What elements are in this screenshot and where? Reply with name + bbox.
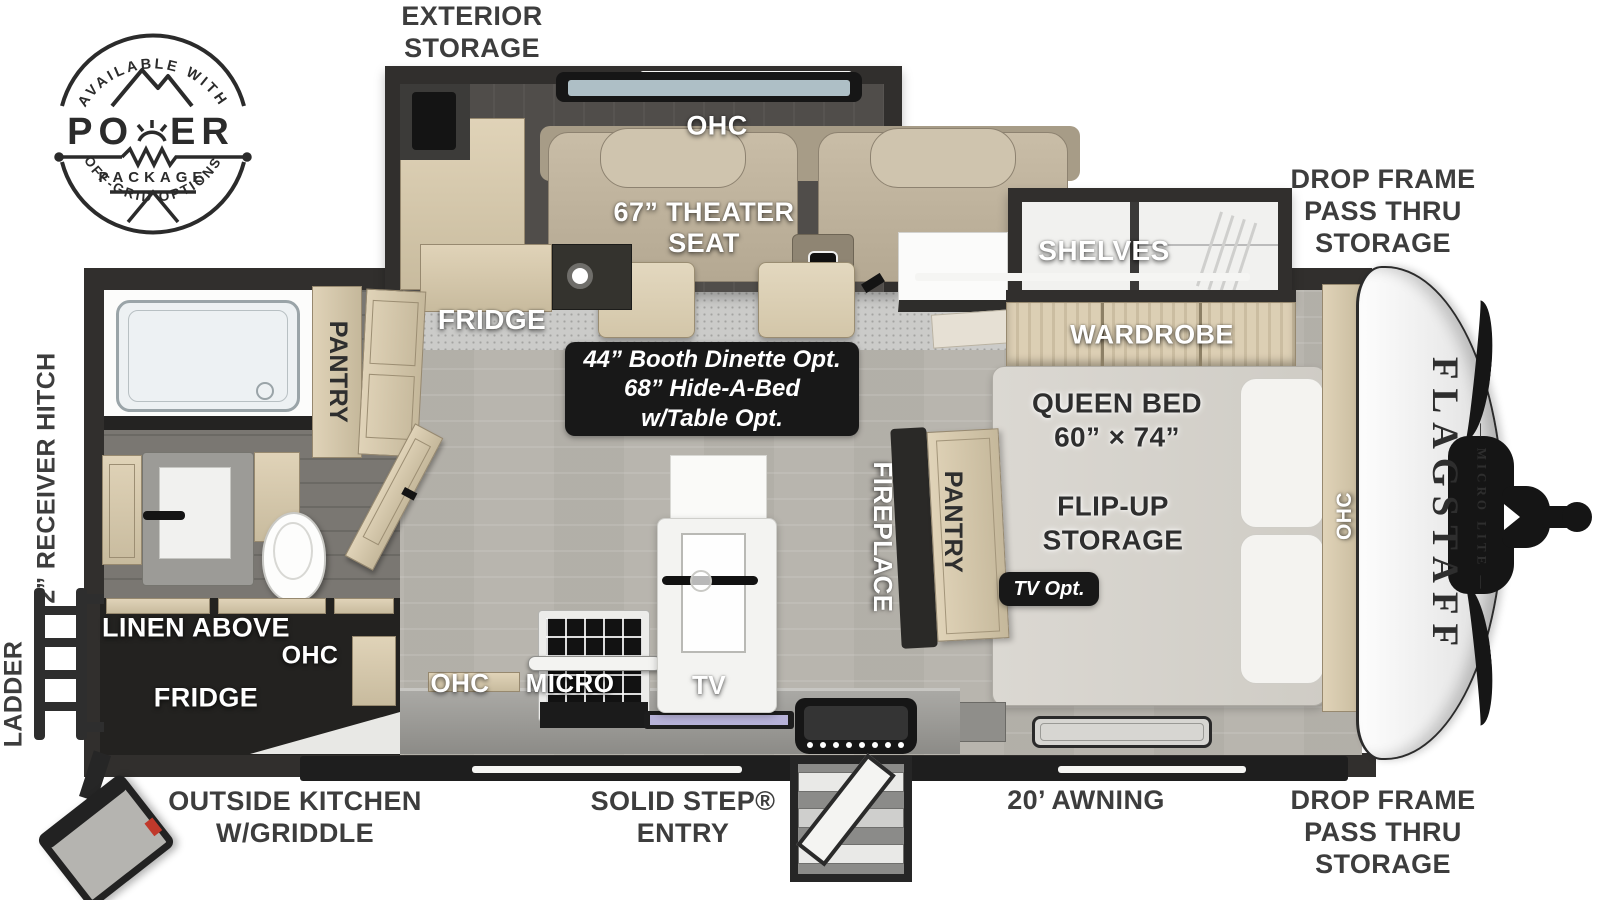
floorplan-diagram: AVAILABLE WITH OFF-GRID OPTIONS PO ER PA… (0, 0, 1600, 900)
tray-table-right (758, 262, 855, 338)
brand-subtitle: — MICRO LITE — (1474, 423, 1489, 592)
ohc-bed-label: OHC (1333, 492, 1357, 540)
top-wall-trim (915, 273, 1250, 281)
stove-base (540, 702, 648, 728)
faucet-icon (143, 511, 185, 520)
logo-title-left: PO (67, 111, 134, 153)
ladder-label: LADDER (0, 641, 29, 748)
hitch-coupler-icon (1562, 502, 1592, 532)
dinette-option-label: 44” Booth Dinette Opt. 68” Hide-A-Bed w/… (583, 345, 840, 433)
dinette-option-badge: 44” Booth Dinette Opt. 68” Hide-A-Bed w/… (565, 342, 859, 436)
rear-shelf-3 (334, 598, 394, 614)
shower-drain-icon (256, 382, 274, 400)
galley-cabinet (420, 244, 552, 312)
ladder (32, 588, 96, 740)
power-package-logo: AVAILABLE WITH OFF-GRID OPTIONS PO ER PA… (46, 24, 260, 238)
shower (104, 290, 312, 430)
kitchen-sink (795, 698, 917, 754)
theater-seat-label: 67” THEATER SEAT (614, 197, 795, 259)
bedroom-step (931, 309, 1011, 348)
tv-opt-badge: TV Opt. (999, 572, 1099, 606)
bedroom-pantry-label: PANTRY (937, 471, 967, 573)
ohc-rear-label: OHC (282, 642, 339, 671)
bed-pillow-top (1240, 378, 1324, 528)
brand-name: FLAGSTAFF (1422, 357, 1466, 655)
entry-door-upper (670, 455, 767, 521)
flip-up-storage-label: FLIP-UP STORAGE (1043, 489, 1184, 556)
ohc-kitchen-label: OHC (431, 669, 490, 699)
vanity-wall-cabinet (102, 455, 142, 565)
wardrobe-label: WARDROBE (1070, 319, 1234, 350)
underbed-tray (1032, 716, 1212, 748)
drop-frame-bottom-label: DROP FRAME PASS THRU STORAGE (1290, 785, 1475, 881)
ohc-slide-label: OHC (686, 110, 747, 141)
tv-opt-label: TV Opt. (1013, 578, 1084, 601)
outside-griddle (36, 772, 177, 900)
rear-cabinet (352, 636, 396, 706)
logo-subtitle: PACKAGE (99, 169, 208, 186)
micro-label: MICRO (526, 669, 615, 699)
griddle-knob-icon (144, 817, 162, 836)
exterior-storage-label: EXTERIOR STORAGE (401, 1, 542, 65)
awning-trim-left (472, 766, 742, 773)
shelves-label: SHELVES (1038, 235, 1169, 267)
slideout-counter (400, 84, 470, 160)
solid-step-entry-label: SOLID STEP® ENTRY (591, 786, 776, 850)
door-lock-icon (690, 570, 712, 592)
fridge-label: FRIDGE (438, 304, 546, 336)
entertainment-nook (898, 232, 1008, 312)
bed-pillow-bottom (1240, 534, 1324, 684)
tv-unit (644, 711, 794, 729)
drop-frame-top-label: DROP FRAME PASS THRU STORAGE (1290, 164, 1475, 260)
toilet (262, 512, 326, 602)
vanity-counter (142, 452, 254, 586)
awning-trim-right (1058, 766, 1246, 773)
logo-title-right: ER (170, 111, 235, 153)
fridge-rear-label: FRIDGE (154, 682, 258, 713)
linen-above-label: LINEN ABOVE (102, 612, 290, 643)
awning-label: 20’ AWNING (1007, 785, 1165, 817)
bath-pantry-label: PANTRY (322, 321, 352, 423)
logo-sun-icon (138, 120, 166, 141)
slideout-window (556, 72, 862, 102)
queen-bed-label: QUEEN BED 60” × 74” (1032, 386, 1202, 453)
receiver-hitch-label: 2” RECEIVER HITCH (32, 352, 62, 603)
outside-kitchen-label: OUTSIDE KITCHEN W/GRIDDLE (168, 786, 422, 850)
tv-label: TV (692, 671, 726, 701)
fireplace-label: FIREPLACE (867, 462, 897, 613)
